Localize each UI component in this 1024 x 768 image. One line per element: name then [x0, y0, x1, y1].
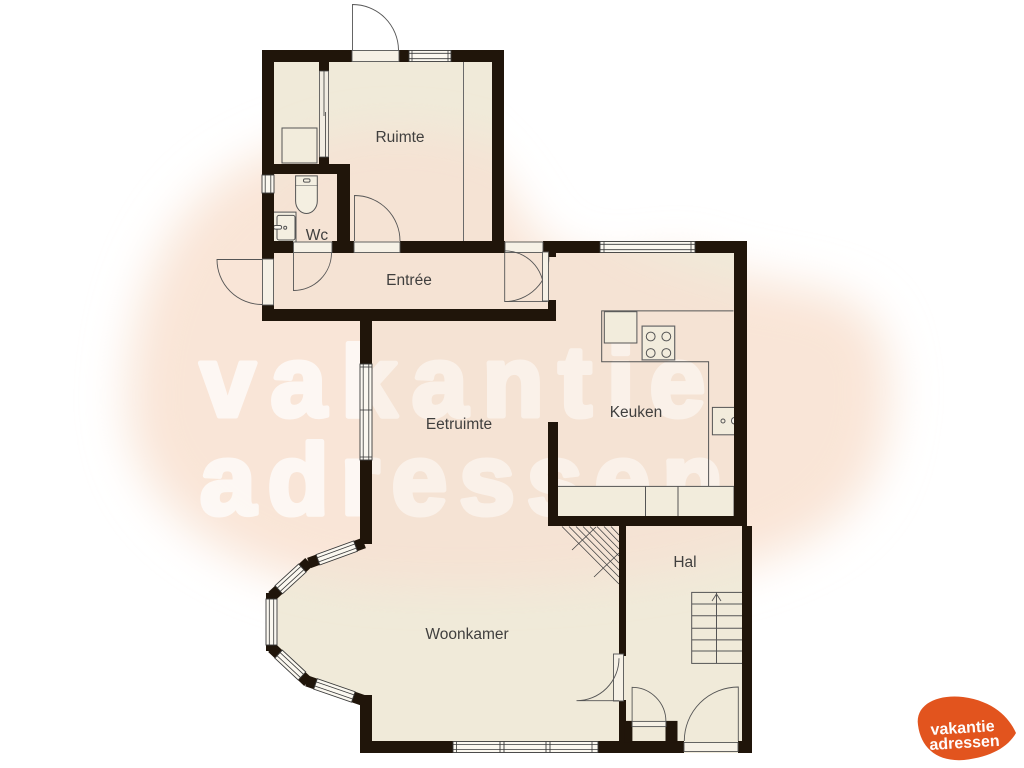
svg-text:Entrée: Entrée — [386, 272, 432, 289]
svg-text:Eetruimte: Eetruimte — [426, 416, 492, 433]
svg-text:Hal: Hal — [673, 554, 696, 571]
svg-text:Ruimte: Ruimte — [375, 129, 424, 146]
svg-text:Keuken: Keuken — [610, 404, 663, 421]
svg-text:Wc: Wc — [306, 227, 329, 244]
svg-text:Woonkamer: Woonkamer — [425, 626, 508, 643]
